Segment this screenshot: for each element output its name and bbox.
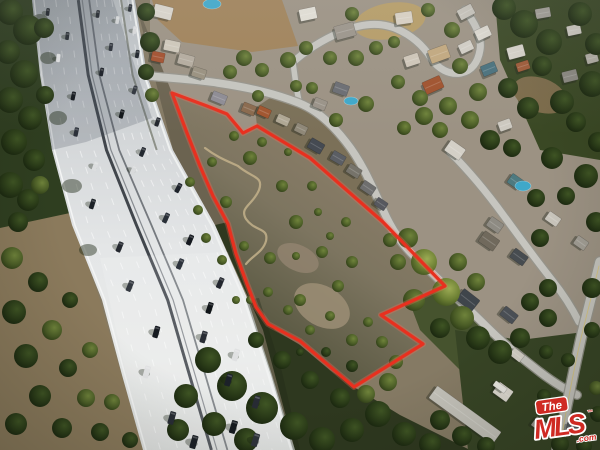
house [392,11,413,28]
tree [28,272,48,292]
swimming-pool [515,181,531,191]
tree [392,422,416,446]
tree [430,318,450,338]
car-windshield [57,55,60,57]
tree [236,50,252,66]
tree [541,147,563,169]
tree [2,300,26,324]
shrub [341,217,351,227]
shrub [229,131,239,141]
shrub [217,255,227,265]
themls-tm-mark: ™ [587,409,594,417]
tree [10,60,38,88]
tree [264,252,276,264]
tree [273,351,291,369]
tree [539,309,557,327]
tree [348,50,364,66]
tree [5,413,27,435]
tree [1,129,27,155]
tree [521,293,539,311]
tree [568,2,592,26]
tree [294,294,306,306]
tree [280,52,296,68]
shrub [296,348,304,356]
tree [536,29,562,55]
tree [23,149,45,171]
shrub [314,208,322,216]
tree [488,340,512,364]
tree-shadow [79,244,97,256]
tree [329,113,343,127]
tree [452,58,468,74]
tree [299,41,313,55]
tree [561,353,575,367]
shrub [292,252,300,260]
tree [280,412,308,440]
swimming-pool [344,97,358,105]
tree [517,97,539,119]
car-windshield [47,9,49,11]
tree [248,332,264,348]
tree [255,63,269,77]
shrub [193,205,203,215]
tree [432,122,448,138]
tree [29,385,51,407]
tree [376,336,388,348]
tree [289,215,303,229]
tree [397,121,411,135]
tree [415,107,433,125]
shrub [321,347,331,357]
tree [358,96,374,112]
tree [202,412,226,436]
tree [34,18,54,38]
aerial-listing-photo: The MLS ™ .com [0,0,600,450]
aerial-scene [0,0,600,450]
tree [365,401,391,427]
tree [449,253,467,271]
tree [357,385,375,403]
tree [574,164,598,188]
tree [388,36,400,48]
shrub [283,305,293,315]
tree [42,320,62,340]
tree [480,130,500,150]
tree [59,359,77,377]
shrub [185,177,195,187]
tree-shadow [62,179,82,193]
shrub [326,232,334,240]
tree [137,3,155,21]
tree [439,97,457,115]
tree [306,82,318,94]
themls-com-text: .com [576,432,597,445]
tree [557,187,575,205]
tree [122,432,138,448]
tree [467,273,485,291]
car-windshield [66,33,69,35]
tree [104,394,120,410]
tree [346,334,358,346]
swimming-pool [203,0,221,9]
car-windshield [97,11,100,13]
tree [340,418,364,442]
tree [31,176,49,194]
tree [532,56,552,76]
tree [369,41,383,55]
tree [412,90,428,106]
tree [461,111,479,129]
tree [77,389,95,407]
tree [444,22,460,38]
tree [145,88,159,102]
tree [290,80,302,92]
shrub [305,325,315,335]
tree [14,344,38,368]
tree [82,342,98,358]
tree [243,151,257,165]
shrub [263,287,273,297]
tree [346,360,358,372]
tree [379,373,397,391]
tree [539,345,553,359]
tree [36,86,54,104]
shrub [201,233,211,243]
tree [276,180,288,192]
tree [246,392,278,424]
shrub [363,317,373,327]
shrub [257,137,267,147]
shrub [325,311,335,321]
tree [527,189,545,207]
tree [466,326,490,350]
tree [323,51,337,65]
tree [174,384,198,408]
tree [584,322,600,338]
tree [390,254,406,270]
tree [550,90,574,114]
shrub [207,157,217,167]
tree [138,64,154,80]
generated-scene [0,0,600,450]
tree [332,280,344,292]
tree [503,139,521,157]
tree [345,7,359,21]
shrub [239,241,249,251]
tree [18,106,42,130]
tree [566,112,586,132]
tree [430,410,450,430]
tree [469,83,487,101]
tree [140,32,160,52]
tree [52,418,72,438]
tree [62,292,78,308]
tree [510,10,538,38]
tree [539,279,557,297]
tree [498,78,518,98]
tree [452,426,472,446]
shrub [232,296,240,304]
tree [450,306,474,330]
tree-shadow [49,111,67,125]
tree [8,212,28,232]
tree [316,246,328,258]
tree [301,371,319,389]
tree [531,229,549,247]
tree [330,388,350,408]
tree [195,347,221,373]
shrub [307,181,317,191]
themls-watermark: The MLS ™ .com [524,388,600,450]
tree [346,256,358,268]
tree [91,423,109,441]
tree [223,65,237,79]
tree [510,328,530,348]
tree [1,247,23,269]
tree [421,3,435,17]
tree [252,90,264,102]
tree [391,75,405,89]
